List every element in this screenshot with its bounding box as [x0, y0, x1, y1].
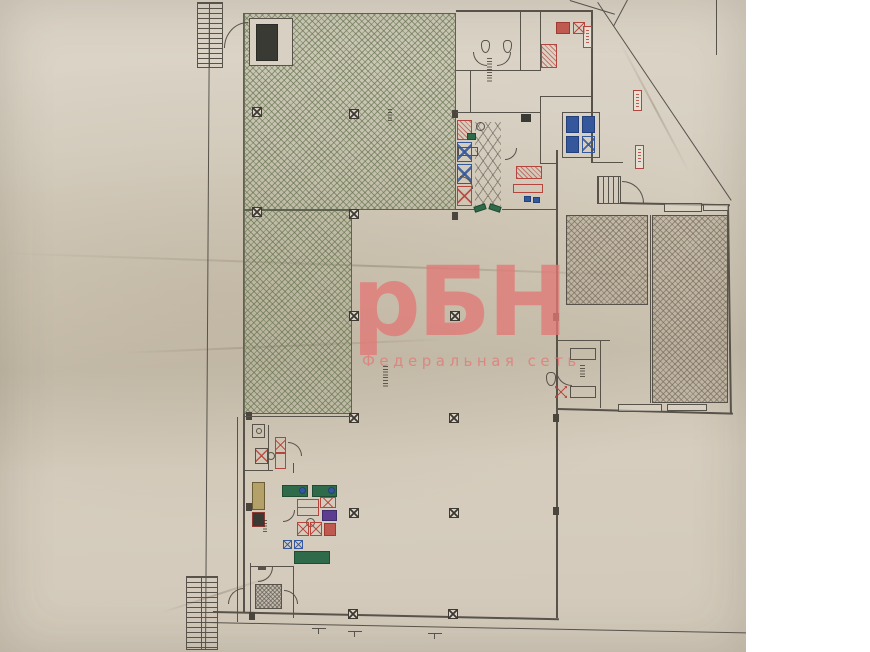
dim-mark	[428, 633, 442, 640]
wall-column-tick	[553, 414, 559, 422]
sink-fixture	[267, 452, 275, 460]
lift-cell-blue	[582, 116, 595, 133]
threshold-step	[664, 203, 702, 212]
prep-table-red	[516, 166, 542, 179]
prep-table-red	[541, 44, 557, 68]
sink-fixture	[476, 122, 485, 131]
appliance-green	[467, 133, 476, 140]
partition	[268, 425, 269, 471]
appliance-dark	[521, 114, 531, 122]
lift-cell-blue	[566, 116, 579, 133]
sink-fixture	[256, 428, 262, 434]
dim-mark	[318, 628, 319, 634]
partition	[520, 10, 521, 70]
partition	[470, 70, 471, 112]
appliance-red	[556, 22, 570, 34]
burner-blue	[299, 487, 306, 494]
wall-column-tick	[553, 507, 559, 515]
red-label-strip	[513, 184, 543, 193]
storage-room-hatch	[566, 215, 648, 305]
flow-arrow	[293, 463, 294, 473]
partition	[250, 563, 251, 618]
partition	[456, 70, 541, 71]
partition	[243, 470, 273, 471]
tan-table	[252, 482, 265, 510]
shelf-strip	[667, 404, 707, 411]
appliance-purple	[322, 510, 337, 521]
burner-blue	[328, 487, 335, 494]
red-cabinet	[297, 522, 309, 536]
partition	[540, 96, 541, 163]
north-wall-block	[456, 10, 593, 12]
block-south-wall	[456, 209, 474, 210]
column-marker	[448, 609, 458, 619]
watermark-subtitle: Федеральная сеть	[362, 352, 581, 370]
lift-cell-blue	[566, 136, 579, 153]
ramp-divider	[209, 2, 210, 68]
wall-column-tick	[452, 212, 458, 220]
block-south-wall	[502, 209, 557, 210]
wing-partition	[600, 340, 601, 408]
red-tag	[633, 90, 642, 111]
red-cabinet	[275, 437, 286, 453]
threshold-step	[703, 204, 729, 211]
column-marker	[449, 508, 459, 518]
dim-mark	[312, 628, 326, 635]
illegible-label	[487, 58, 492, 82]
column-marker	[349, 508, 359, 518]
queue-rail-zigzag	[475, 122, 501, 206]
cluster-wall	[243, 416, 352, 417]
red-tag	[635, 145, 644, 169]
checkout-counter-red	[457, 186, 472, 206]
partition	[540, 96, 592, 97]
dim-mark	[434, 633, 435, 639]
partition	[456, 112, 541, 113]
partition	[540, 163, 558, 164]
column-marker	[349, 209, 359, 219]
appliance-blue	[524, 196, 531, 202]
photo-right-margin	[746, 0, 870, 652]
canopy-post-line	[716, 0, 717, 55]
wall-column-tick	[249, 612, 255, 620]
hall-east-wall	[556, 150, 558, 618]
ramp-divider	[201, 576, 202, 650]
vestibule-equipment	[256, 24, 278, 61]
wing-partition	[558, 340, 610, 341]
entrance-ramp-bottom	[186, 576, 218, 650]
door-leaf	[258, 567, 266, 570]
column-marker	[252, 207, 262, 217]
storage-room-hatch	[652, 215, 728, 403]
sales-hall-hatch-lower	[243, 210, 352, 414]
stairs	[597, 176, 621, 204]
column-marker	[449, 413, 459, 423]
red-counter-line	[297, 507, 319, 508]
work-table	[570, 386, 596, 398]
appliance-red	[324, 523, 336, 536]
block-south-link	[591, 162, 623, 163]
red-cabinet	[275, 453, 286, 469]
wing-partition	[650, 215, 651, 403]
lift-cell-blue	[582, 136, 595, 153]
green-counter	[294, 551, 330, 564]
appliance-blue	[294, 540, 303, 549]
red-x-mark	[555, 386, 567, 398]
red-counter-x	[320, 497, 336, 508]
floorplan-photo: рБН Федеральная сеть	[0, 0, 870, 652]
illegible-label	[263, 520, 267, 532]
work-table	[458, 147, 478, 156]
column-marker	[349, 413, 359, 423]
watermark-logo: рБН	[352, 262, 565, 344]
column-marker	[348, 609, 358, 619]
red-cabinet	[310, 522, 322, 536]
appliance-blue	[283, 540, 292, 549]
illegible-label	[388, 109, 392, 123]
partition	[293, 566, 294, 618]
platform-hatch	[255, 584, 282, 609]
column-marker	[349, 109, 359, 119]
shelf-strip	[618, 404, 662, 412]
entrance-ramp-top	[197, 2, 223, 68]
appliance-blue	[533, 197, 540, 203]
dim-mark	[354, 631, 355, 637]
dim-mark	[348, 631, 362, 638]
column-marker	[252, 107, 262, 117]
illegible-label	[580, 365, 585, 379]
red-tag	[583, 26, 592, 48]
